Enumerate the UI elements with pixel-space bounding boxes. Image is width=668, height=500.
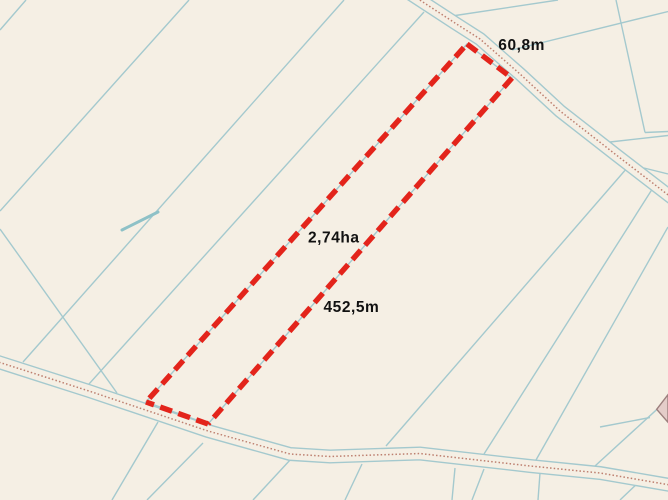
svg-text:60,8m: 60,8m (498, 37, 545, 54)
svg-text:2,74ha: 2,74ha (308, 229, 360, 246)
svg-text:452,5m: 452,5m (324, 299, 380, 316)
